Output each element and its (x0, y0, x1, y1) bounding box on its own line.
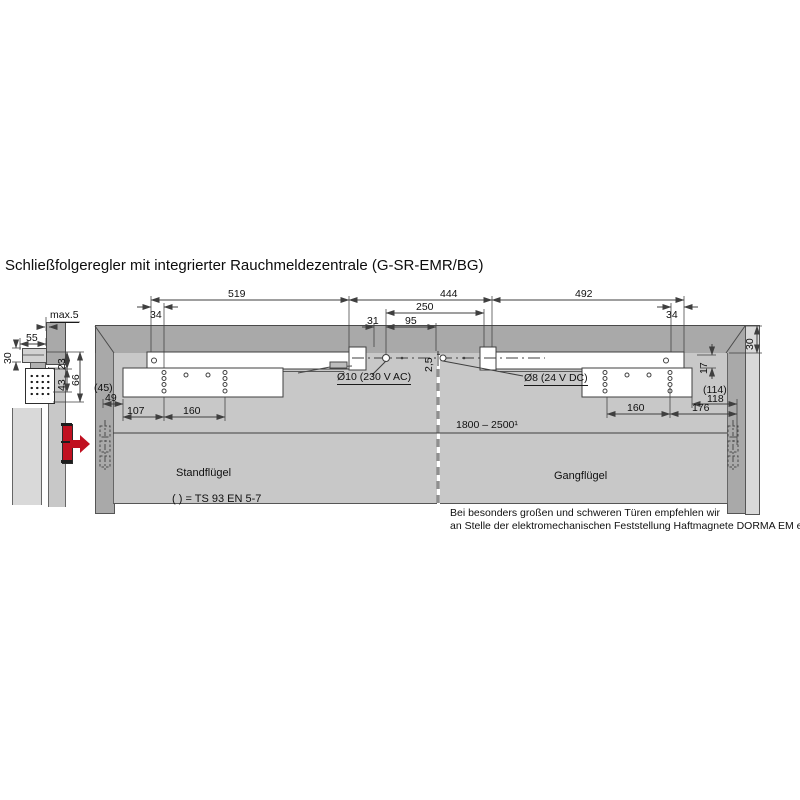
dim-160-right: 160 (627, 402, 645, 414)
note-line2: an Stelle der elektromechanischen Festst… (450, 520, 800, 532)
dim-max5: max.5 (50, 309, 79, 323)
hinge-symbol-left (100, 420, 110, 470)
dim-34-right: 34 (666, 309, 678, 321)
door-width-range: 1800 – 2500¹ (456, 419, 518, 431)
mounting-plate-right (582, 368, 692, 397)
label-gangfluegel: Gangflügel (554, 470, 607, 483)
dim-34-left: 34 (150, 309, 162, 321)
note-line1: Bei besonders großen und schweren Türen … (450, 507, 720, 519)
legend-ts93: ( ) = TS 93 EN 5-7 (172, 493, 261, 506)
dim-250: 250 (416, 301, 434, 313)
dim-176: 176 (692, 402, 710, 414)
dim-2-5: 2,5 (423, 352, 435, 372)
dim-30-side: 30 (2, 346, 14, 364)
label-standfluegel: Standflügel (176, 467, 231, 480)
drill-hole-dc (440, 355, 446, 361)
dim-519: 519 (228, 288, 246, 300)
dim-492: 492 (575, 288, 593, 300)
drill-label-dc: Ø8 (24 V DC) (524, 372, 588, 386)
dim-31: 31 (367, 315, 379, 327)
dim-444: 444 (440, 288, 458, 300)
corner-miters (95, 326, 745, 353)
dim-55: 55 (26, 332, 38, 344)
drill-hole-ac (383, 355, 390, 362)
dim-43: 43 (56, 371, 68, 391)
dim-160-left: 160 (183, 405, 201, 417)
mounting-plate-left (123, 368, 283, 397)
dim-95: 95 (405, 315, 417, 327)
drill-label-ac: Ø10 (230 V AC) (337, 371, 411, 385)
drawing-linework (0, 0, 800, 800)
page-title: Schließfolgeregler mit integrierter Rauc… (5, 257, 484, 274)
dim-49: 49 (105, 392, 117, 404)
dim-23: 23 (56, 352, 68, 370)
hinge-symbol-right (728, 420, 738, 470)
glide-rail-left (147, 352, 350, 369)
dim-107: 107 (127, 405, 145, 417)
dim-66: 66 (70, 366, 82, 386)
glide-rail-right (495, 352, 684, 369)
dim-30-right: 30 (744, 328, 756, 350)
dim-17: 17 (698, 356, 710, 374)
technical-drawing-page: Schließfolgeregler mit integrierter Rauc… (0, 0, 800, 800)
